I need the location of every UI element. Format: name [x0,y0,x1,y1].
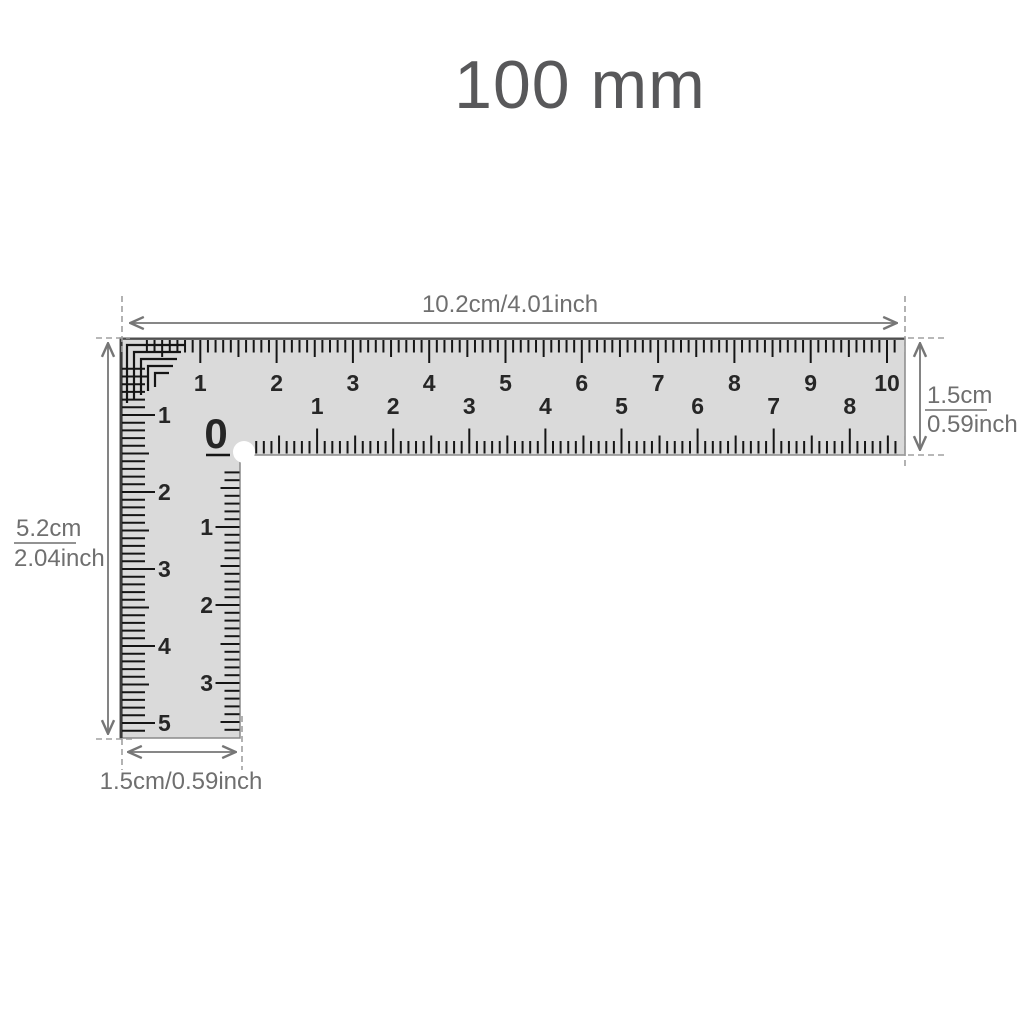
product-image: 100 mm 12345678910 12345678 12345 123 0 … [0,0,1024,1024]
ruler-lshape [120,338,905,738]
scale-number: 5 [615,393,628,419]
scale-number: 5 [158,710,171,736]
scale-number: 3 [463,393,476,419]
scale-number: 2 [158,479,171,505]
scale-number: 7 [767,393,780,419]
right-dimension-label-cm: 1.5cm [927,382,992,409]
scale-number: 7 [652,370,665,396]
page-title: 100 mm [454,47,706,123]
scale-number: 1 [158,402,171,428]
left-dimension-label-cm: 5.2cm [16,515,81,542]
ruler-body [120,338,905,738]
scale-number: 8 [843,393,856,419]
inner-scale-zero-label: 0 [204,410,227,457]
scale-number: 4 [539,393,552,419]
scale-number: 3 [200,670,213,696]
scale-number: 10 [874,370,900,396]
scale-number: 5 [499,370,512,396]
scale-number: 9 [804,370,817,396]
top-dimension-label: 10.2cm/4.01inch [422,291,598,318]
bottom-dimension-label: 1.5cm/0.59inch [100,768,263,795]
scale-number: 4 [423,370,436,396]
ruler-diagram: 100 mm 12345678910 12345678 12345 123 0 … [0,0,1024,1024]
scale-number: 1 [200,514,213,540]
scale-number: 6 [691,393,704,419]
scale-number: 4 [158,633,171,659]
scale-number: 3 [158,556,171,582]
scale-number: 6 [575,370,588,396]
scale-number: 1 [311,393,324,419]
left-dimension-label-inch: 2.04inch [14,545,105,572]
scale-number: 2 [200,592,213,618]
scale-number: 8 [728,370,741,396]
scale-number: 2 [387,393,400,419]
hanging-hole [233,441,255,463]
scale-number: 3 [347,370,360,396]
right-dimension-label-inch: 0.59inch [927,411,1018,438]
scale-number: 2 [270,370,283,396]
scale-number: 1 [194,370,207,396]
